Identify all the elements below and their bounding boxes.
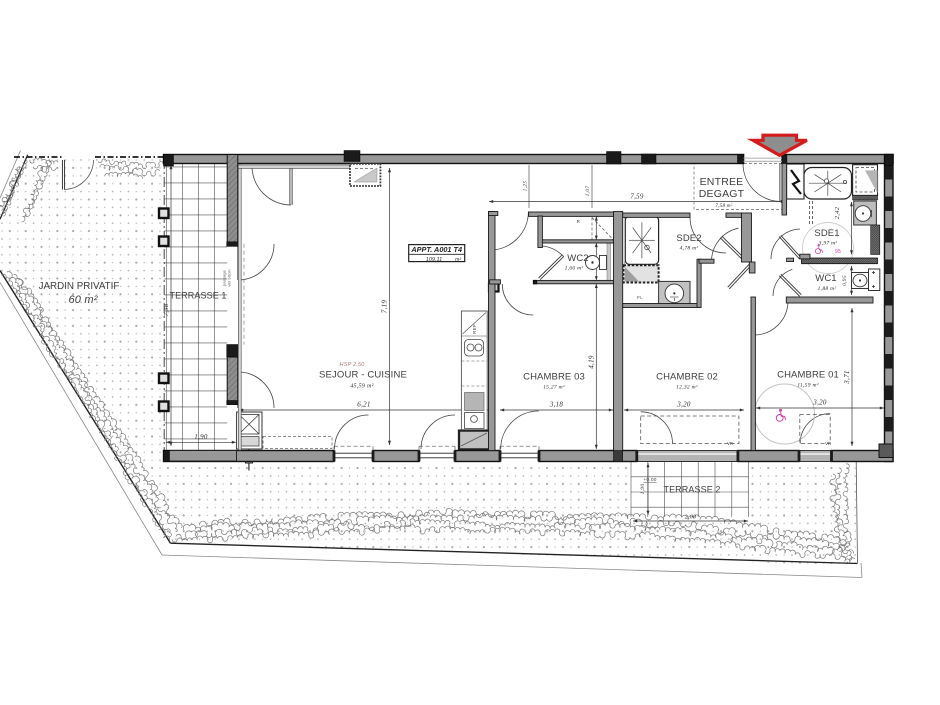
- svg-text:SDE2: SDE2: [676, 233, 701, 244]
- svg-text:1,90: 1,90: [194, 433, 208, 441]
- svg-text:4,19: 4,19: [587, 355, 595, 369]
- svg-text:WC2: WC2: [567, 253, 588, 264]
- svg-text:3,18: 3,18: [549, 401, 564, 409]
- svg-text:95: 95: [835, 249, 841, 255]
- svg-text:0,95: 0,95: [842, 275, 848, 286]
- svg-text:109.11: 109.11: [426, 257, 442, 263]
- svg-text:TERRASSE 2: TERRASSE 2: [663, 485, 720, 495]
- svg-text:vitr 90cm: vitr 90cm: [227, 269, 232, 287]
- svg-text:REF: REF: [472, 324, 477, 334]
- svg-text:2,42: 2,42: [834, 206, 841, 219]
- svg-text:11,59 m²: 11,59 m²: [797, 383, 818, 389]
- svg-text:SEJOUR - CUISINE: SEJOUR - CUISINE: [319, 370, 407, 381]
- svg-text:R: R: [577, 219, 581, 224]
- svg-text:2,00: 2,00: [685, 515, 697, 521]
- svg-text:1,07: 1,07: [585, 186, 591, 197]
- svg-text:JARDIN PRIVATIF: JARDIN PRIVATIF: [39, 281, 120, 292]
- svg-text:4,78 m²: 4,78 m²: [680, 245, 699, 252]
- svg-text:CHAMBRE 01: CHAMBRE 01: [777, 370, 839, 381]
- svg-text:3,71: 3,71: [843, 370, 851, 384]
- svg-text:6,21: 6,21: [357, 401, 370, 409]
- svg-text:ENTREE: ENTREE: [700, 176, 744, 188]
- svg-text:12,32 m²: 12,32 m²: [676, 385, 698, 391]
- svg-text:7,59: 7,59: [630, 193, 644, 201]
- svg-text:SDE1: SDE1: [814, 228, 839, 239]
- svg-text:CHAMBRE 02: CHAMBRE 02: [656, 372, 718, 383]
- svg-text:1,66 m²: 1,66 m²: [565, 266, 584, 272]
- svg-text:3,97 m²: 3,97 m²: [818, 241, 838, 247]
- svg-text:7,19: 7,19: [381, 300, 389, 314]
- svg-text:m²: m²: [455, 257, 461, 263]
- svg-text:1,90: 1,90: [640, 484, 646, 495]
- svg-text:1,88 m²: 1,88 m²: [818, 286, 837, 292]
- svg-text:7,38: 7,38: [163, 303, 170, 316]
- svg-text:3,20: 3,20: [676, 401, 691, 409]
- svg-text:HSP 2.50: HSP 2.50: [340, 362, 366, 368]
- svg-text:WC1: WC1: [815, 273, 836, 284]
- svg-text:APPT. A001 T4: APPT. A001 T4: [410, 245, 462, 254]
- svg-text:1,25: 1,25: [523, 181, 529, 192]
- svg-text:60 m²: 60 m²: [68, 294, 97, 306]
- svg-text:7,58 m²: 7,58 m²: [715, 203, 732, 209]
- svg-text:15,27 m²: 15,27 m²: [543, 385, 565, 391]
- svg-text:+0.00: +0.00: [643, 477, 656, 483]
- svg-text:DEGAGT: DEGAGT: [699, 188, 745, 200]
- svg-text:CHAMBRE 03: CHAMBRE 03: [523, 372, 585, 383]
- svg-text:45,59 m²: 45,59 m²: [350, 383, 374, 390]
- svg-text:PL: PL: [637, 295, 643, 300]
- svg-text:TERRASSE 1: TERRASSE 1: [169, 291, 226, 301]
- svg-text:3,20: 3,20: [812, 399, 827, 407]
